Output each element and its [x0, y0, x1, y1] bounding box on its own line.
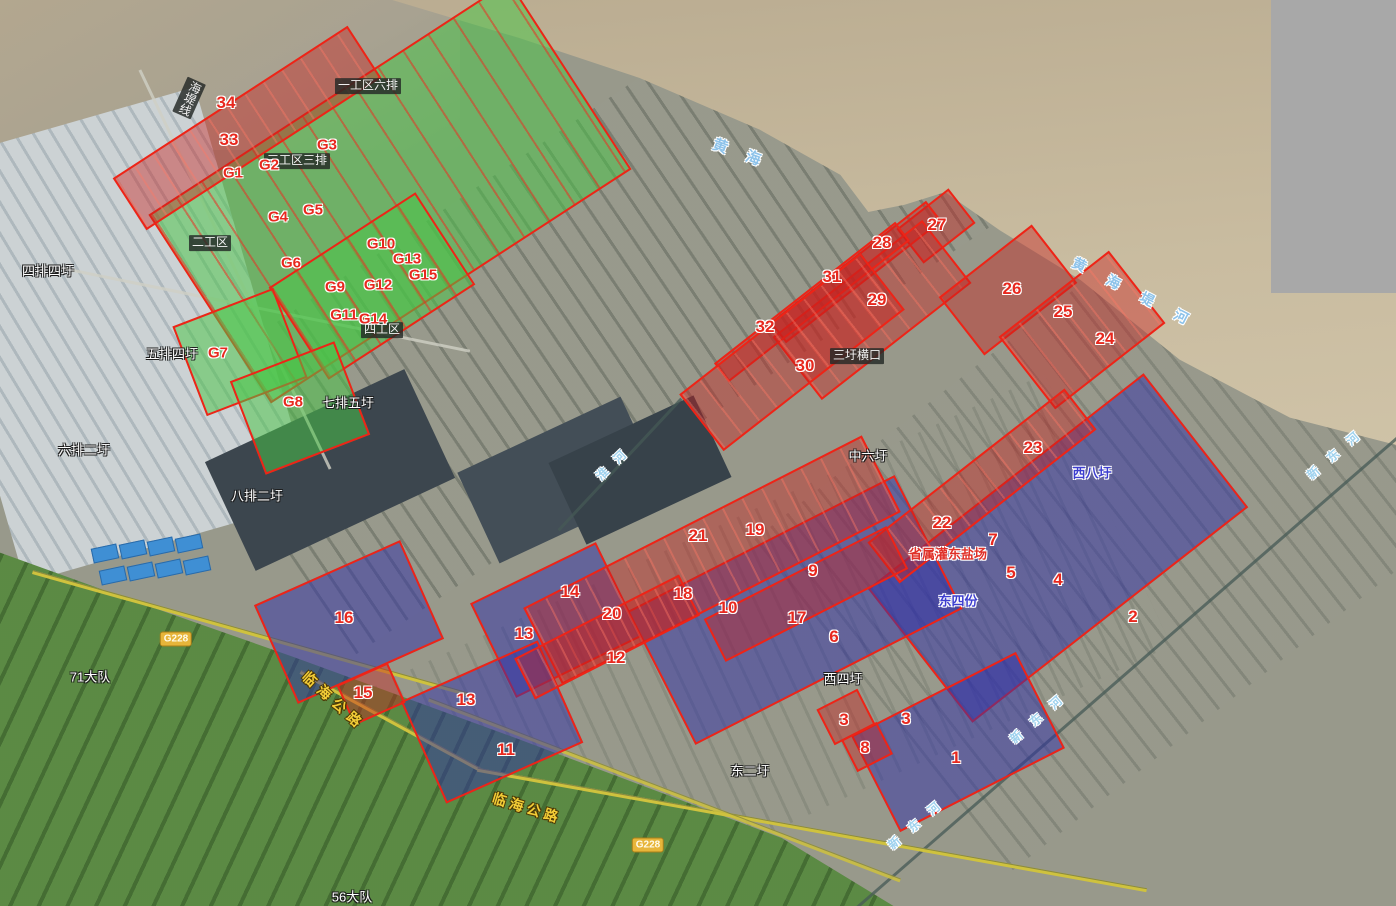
parcel-number-G9: G9: [325, 278, 345, 295]
parcel-number-27: 27: [928, 215, 947, 235]
place-label: 六排二圩: [58, 444, 110, 459]
place-label: 四排四圩: [22, 265, 74, 280]
parcel-number-10: 10: [719, 598, 738, 618]
place-label: 56大队: [332, 891, 372, 906]
parcel-number-G4: G4: [268, 208, 288, 225]
zone-label: 东四份: [938, 595, 977, 610]
parcel-number-G12: G12: [364, 276, 392, 293]
parcel-number-2: 2: [1128, 607, 1137, 627]
place-label: 71大队: [70, 671, 110, 686]
parcel-number-24: 24: [1096, 329, 1115, 349]
parcel-number-8: 8: [860, 738, 869, 758]
zone-label: 西八圩: [1072, 467, 1111, 482]
satellite-map: 一工区六排三工区三排二工区四工区三圩横口海堤线四排四圩五排四圩七排五圩六排二圩八…: [0, 0, 1396, 906]
parcel-number-G5: G5: [303, 201, 323, 218]
place-label: 五排四圩: [146, 348, 198, 363]
saltworks-label: 省属灌东盐场: [909, 548, 987, 563]
place-label: 东二圩: [730, 765, 769, 780]
parcel-number-26: 26: [1003, 279, 1022, 299]
parcel-number-G14: G14: [359, 310, 387, 327]
parcel-number-G13: G13: [393, 250, 421, 267]
parcel-number-3: 3: [901, 709, 910, 729]
area-box-label: 三圩横口: [830, 348, 884, 364]
sea-label: 黄海堤河: [1070, 254, 1213, 337]
parcel-number-5: 5: [1006, 563, 1015, 583]
parcel-number-9: 9: [808, 561, 817, 581]
parcel-number-G7: G7: [208, 344, 228, 361]
parcel-number-6: 6: [829, 627, 838, 647]
parcel-number-32: 32: [756, 317, 775, 337]
parcel-number-28: 28: [873, 233, 892, 253]
parcel-number-G10: G10: [367, 235, 395, 252]
parcel-number-33: 33: [220, 130, 239, 150]
parcel-number-12: 12: [607, 648, 626, 668]
parcel-number-31: 31: [823, 267, 842, 287]
parcel-number-25: 25: [1054, 302, 1073, 322]
parcel-number-29: 29: [868, 290, 887, 310]
parcel-number-G2: G2: [259, 156, 279, 173]
sea-label: 黄海: [710, 136, 782, 176]
area-box-label: 海堤线: [172, 77, 206, 120]
parcel-number-G1: G1: [223, 164, 243, 181]
place-label: 中六圩: [848, 450, 887, 465]
place-label: 七排五圩: [322, 397, 374, 412]
parcel-number-G15: G15: [409, 266, 437, 283]
place-label: 西四圩: [823, 673, 862, 688]
river-label: 淮河: [594, 440, 638, 483]
parcel-number-14: 14: [561, 582, 580, 602]
parcel-number-19: 19: [746, 520, 765, 540]
parcel-number-18: 18: [674, 584, 693, 604]
parcel-number-G3: G3: [317, 136, 337, 153]
road-name-label: 临海公路: [490, 790, 564, 826]
place-label: 八排二圩: [231, 490, 283, 505]
parcel-number-4: 4: [1053, 570, 1062, 590]
parcel-number-7: 7: [988, 530, 997, 550]
parcel-number-3: 3: [839, 710, 848, 730]
parcel-number-11: 11: [497, 740, 515, 760]
river-label: 新东河: [1008, 685, 1076, 747]
river-label: 新东河: [1305, 421, 1373, 483]
parcel-number-G8: G8: [283, 393, 303, 410]
parcel-number-G11: G11: [330, 306, 358, 323]
parcel-number-13: 13: [515, 624, 534, 644]
parcel-number-16: 16: [335, 608, 354, 628]
parcel-number-15: 15: [354, 683, 373, 703]
parcel-number-30: 30: [796, 356, 815, 376]
parcel-number-G6: G6: [281, 254, 301, 271]
parcel-number-17: 17: [788, 608, 807, 628]
parcel-number-34: 34: [217, 93, 236, 113]
parcel-number-23: 23: [1024, 438, 1043, 458]
road-shield-g228: G228: [632, 838, 664, 853]
parcel-number-21: 21: [689, 526, 708, 546]
river-label: 新东河: [886, 791, 954, 853]
road-shield-g228: G228: [160, 632, 192, 647]
area-box-label: 二工区: [189, 235, 231, 251]
parcel-number-13: 13: [457, 690, 476, 710]
map-labels-layer: 一工区六排三工区三排二工区四工区三圩横口海堤线四排四圩五排四圩七排五圩六排二圩八…: [0, 0, 1396, 906]
area-box-label: 一工区六排: [335, 78, 401, 94]
parcel-number-20: 20: [603, 604, 622, 624]
parcel-number-1: 1: [951, 748, 960, 768]
parcel-number-22: 22: [933, 513, 952, 533]
